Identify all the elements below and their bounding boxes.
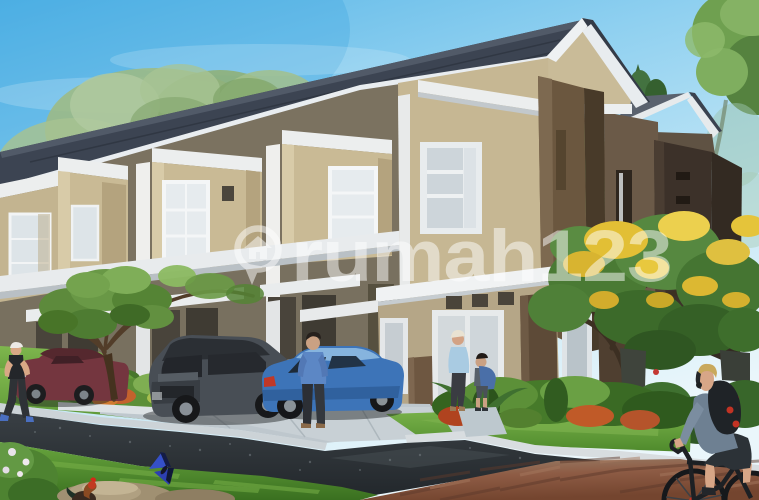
- svg-text:rumah123: rumah123: [291, 214, 672, 296]
